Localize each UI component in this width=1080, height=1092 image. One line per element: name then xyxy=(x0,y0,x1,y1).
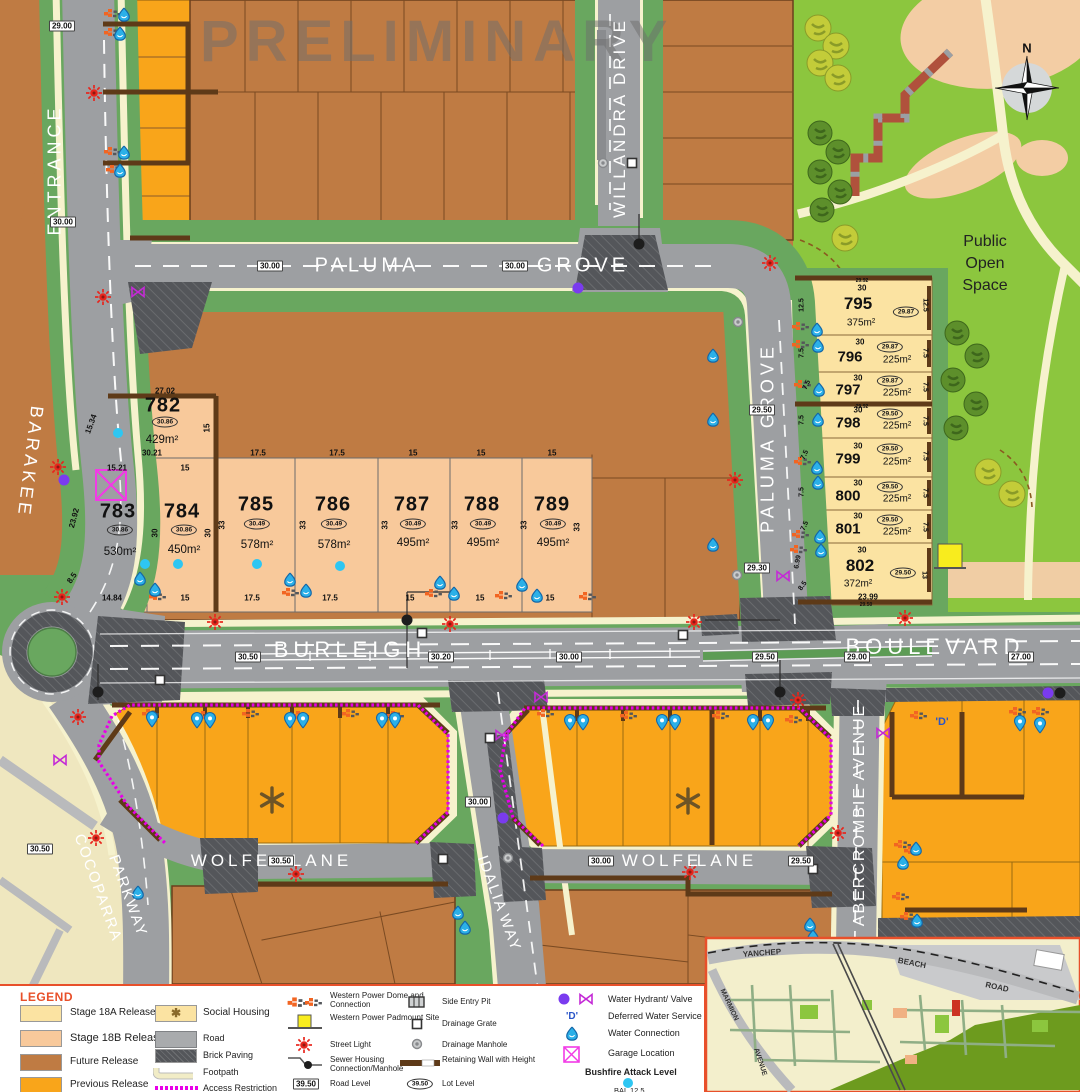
tree-icon xyxy=(941,368,965,392)
lot-level: 30.49 xyxy=(321,519,347,530)
lot-dim: 7.5 xyxy=(799,415,806,425)
street-wolfe-east: WOLFE xyxy=(622,851,702,871)
wall-level: 29.92 xyxy=(856,278,869,284)
tree-icon xyxy=(828,180,852,204)
bushfire-level-icon xyxy=(113,428,123,438)
street-paluma-grove-vertical: PALUMA GROVE xyxy=(758,343,779,533)
legend-label: Retaining Wall with Height xyxy=(442,1056,554,1065)
lot-dim: 30 xyxy=(858,284,867,293)
lot-dim: 7.5 xyxy=(799,487,806,497)
lot-number: 796 xyxy=(837,349,862,366)
bushfire-level-icon xyxy=(252,559,262,569)
lot-dim: 17.5 xyxy=(250,449,266,458)
legend-label: Garage Location xyxy=(608,1049,738,1058)
street-light-icon xyxy=(830,825,846,841)
tree-icon xyxy=(964,392,988,416)
road-level: 30.00 xyxy=(50,217,76,228)
lot-number: 787 xyxy=(394,494,430,517)
legend-label: Future Release xyxy=(70,1056,138,1067)
lot-level: 29.87 xyxy=(877,342,903,353)
tree-icon xyxy=(945,321,969,345)
lot-area: 372m² xyxy=(844,579,872,590)
sewer-manhole-icon xyxy=(93,687,104,698)
tree-icon xyxy=(832,225,858,251)
street-light-icon xyxy=(54,589,70,605)
lot-number: 802 xyxy=(846,556,874,576)
lot-dim: 30 xyxy=(854,442,863,451)
street-boulevard: BOULEVARD xyxy=(845,634,1024,660)
legend-label: Drainage Manhole xyxy=(442,1041,554,1050)
lot-dim: 12.5 xyxy=(799,298,806,312)
legend-garage-icon xyxy=(560,1044,584,1064)
legend-label: Access Restriction xyxy=(203,1083,277,1092)
deferred-water-marker: 'D' xyxy=(935,716,948,728)
road-level: 29.00 xyxy=(49,21,75,32)
lot-level: 29.50 xyxy=(877,409,903,420)
legend-padmount-icon xyxy=(286,1012,326,1032)
legend-brick-paving-icon xyxy=(155,1049,197,1063)
lot-dim: 30.21 xyxy=(142,449,162,458)
lot-level: 30.86 xyxy=(171,525,197,536)
lot-number: 798 xyxy=(835,415,860,432)
subdivision-plan: PRELIMINARY ENTRANCE BARAKEE WILLANDRA D… xyxy=(0,0,1080,1092)
street-abercrombie-avenue: ABERCROMBIE AVENUE xyxy=(851,704,869,926)
lot-dim: 15 xyxy=(548,449,557,458)
sewer-manhole-icon xyxy=(1055,688,1066,699)
water-hydrant-icon xyxy=(1043,688,1054,699)
street-lane-east: LANE xyxy=(697,851,757,871)
lot-level: 29.87 xyxy=(877,376,903,387)
lot-level: 29.50 xyxy=(890,568,916,579)
road-level: 30.20 xyxy=(428,652,454,663)
lot-dim: 33 xyxy=(520,521,529,530)
lot-number: 786 xyxy=(315,494,351,517)
sewer-manhole-icon xyxy=(775,687,786,698)
legend-swatch-18a xyxy=(20,1005,62,1022)
road-level: 30.00 xyxy=(257,261,283,272)
tree-icon xyxy=(825,65,851,91)
street-wolfe-west: WOLFE xyxy=(191,851,271,871)
lot-area: 225m² xyxy=(883,527,911,538)
lot-dim: 30 xyxy=(858,546,867,555)
lot-dim: 15 xyxy=(406,594,415,603)
tree-icon xyxy=(808,160,832,184)
lot-number: 785 xyxy=(238,494,274,517)
drainage-grate-icon xyxy=(486,734,495,743)
compass-north-label: N xyxy=(1022,41,1031,56)
tree-icon xyxy=(999,481,1025,507)
legend-label: Road xyxy=(203,1033,225,1043)
legend-sewer-icon xyxy=(284,1054,328,1072)
legend-label: Bushfire Attack Level xyxy=(585,1068,715,1077)
lot-dim: 33 xyxy=(218,521,227,530)
lot-dim: 17.5 xyxy=(322,594,338,603)
street-willandra-drive: WILLANDRA DRIVE xyxy=(610,18,630,218)
legend-road-level-icon: 39.50 xyxy=(293,1079,319,1090)
street-lane-west: LANE xyxy=(292,851,352,871)
street-paluma: PALUMA xyxy=(315,255,420,278)
street-light-icon xyxy=(897,610,913,626)
tree-icon xyxy=(808,121,832,145)
lot-level: 30.86 xyxy=(152,417,178,428)
lot-level: 29.50 xyxy=(877,515,903,526)
lot-dim: 14.84 xyxy=(102,594,122,603)
street-light-icon xyxy=(207,614,223,630)
lot-number: 788 xyxy=(464,494,500,517)
bushfire-level-icon xyxy=(140,559,150,569)
lot-dim: 17.5 xyxy=(244,594,260,603)
lot-level: 30.49 xyxy=(400,519,426,530)
tree-icon xyxy=(975,459,1001,485)
legend-label: Stage 18B Release xyxy=(70,1032,165,1044)
lot-area: 495m² xyxy=(467,537,500,549)
lot-level: 30.86 xyxy=(107,525,133,536)
lot-dim: 33 xyxy=(451,521,460,530)
drainage-manhole-icon xyxy=(734,318,743,327)
legend-footpath-icon xyxy=(153,1066,195,1080)
legend-drainage-manhole-icon xyxy=(405,1036,429,1052)
legend-label: Water Hydrant/ Valve xyxy=(608,995,738,1004)
legend-power-dome-icon xyxy=(283,994,327,1010)
road-level: 30.50 xyxy=(27,844,53,855)
lot-dim: 30 xyxy=(854,512,863,521)
sewer-manhole-icon xyxy=(634,239,645,250)
lot-dim: 7.5 xyxy=(922,488,929,498)
lot-dim: 17.5 xyxy=(329,449,345,458)
tree-icon xyxy=(965,344,989,368)
lot-dim: 15 xyxy=(203,424,212,433)
legend-label: Side Entry Pit xyxy=(442,998,554,1007)
lot-number: 782 xyxy=(145,395,181,418)
lot-dim: 13 xyxy=(921,571,928,579)
lot-area: 225m² xyxy=(883,355,911,366)
lot-number: 801 xyxy=(835,521,860,538)
road-level: 30.50 xyxy=(235,652,261,663)
road-level: 29.30 xyxy=(744,563,770,574)
preliminary-watermark: PRELIMINARY xyxy=(200,8,780,75)
lot-dim: 33 xyxy=(299,521,308,530)
lot-dim: 30 xyxy=(856,338,865,347)
road-level: 29.50 xyxy=(749,405,775,416)
drainage-manhole-icon xyxy=(504,854,513,863)
legend-road-icon xyxy=(155,1031,197,1048)
legend-label: Lot Level xyxy=(442,1080,554,1089)
bushfire-level-icon xyxy=(335,561,345,571)
legend-drainage-grate-icon xyxy=(405,1016,429,1032)
lot-dim: 15 xyxy=(477,449,486,458)
water-hydrant-icon xyxy=(498,813,509,824)
pos-label-open: Open xyxy=(965,255,1004,273)
lot-dim: 15.21 xyxy=(107,464,127,473)
lot-dim: 30 xyxy=(151,529,160,538)
lot-level: 30.49 xyxy=(540,519,566,530)
lot-dim: 7.5 xyxy=(922,416,929,426)
drainage-grate-icon xyxy=(156,676,165,685)
wall-level: 29.50 xyxy=(860,602,873,608)
sewer-manhole-icon xyxy=(402,615,413,626)
legend-retaining-wall-icon xyxy=(398,1056,442,1070)
lot-number: 799 xyxy=(835,451,860,468)
street-light-icon xyxy=(70,709,86,725)
drainage-grate-icon xyxy=(679,631,688,640)
legend-label: Brick Paving xyxy=(203,1050,253,1060)
lot-area: 530m² xyxy=(104,546,137,558)
lot-dim: 15 xyxy=(546,594,555,603)
legend-label: Water Connection xyxy=(608,1029,738,1038)
road-level: 30.00 xyxy=(465,797,491,808)
road-level: 30.00 xyxy=(502,261,528,272)
lot-area: 225m² xyxy=(883,388,911,399)
lot-level: 30.49 xyxy=(470,519,496,530)
lot-dim: 15 xyxy=(409,449,418,458)
legend-access-restriction-icon xyxy=(155,1086,199,1090)
lot-number: 795 xyxy=(844,294,872,314)
street-grove: GROVE xyxy=(537,255,629,278)
road-level: 27.00 xyxy=(1008,652,1034,663)
bushfire-level-icon xyxy=(173,559,183,569)
lot-area: 429m² xyxy=(146,434,179,446)
legend-swatch-previous xyxy=(20,1077,62,1092)
lot-level: 30.49 xyxy=(244,519,270,530)
legend-swatch-18b xyxy=(20,1030,62,1047)
wall-level: 29.92 xyxy=(856,404,869,410)
tree-icon xyxy=(826,140,850,164)
legend-social-housing-icon: ✱ xyxy=(155,1005,197,1022)
lot-area: 375m² xyxy=(847,318,875,329)
lot-area: 225m² xyxy=(883,421,911,432)
road-level: 29.00 xyxy=(844,652,870,663)
legend-label: Previous Release xyxy=(70,1079,148,1090)
lot-area: 495m² xyxy=(397,537,430,549)
lot-area: 225m² xyxy=(883,494,911,505)
lot-dim: 15 xyxy=(476,594,485,603)
lot-number: 800 xyxy=(835,488,860,505)
lot-dim: 12.5 xyxy=(922,298,929,312)
legend-label: Footpath xyxy=(203,1067,239,1077)
drainage-manhole-icon xyxy=(599,159,608,168)
lot-dim: 23.99 xyxy=(858,593,878,602)
legend-label: Social Housing xyxy=(203,1007,270,1018)
legend-label: Stage 18A Release xyxy=(70,1007,156,1018)
road-level: 29.50 xyxy=(752,652,778,663)
road-level: 30.50 xyxy=(268,856,294,867)
legend-label: Deferred Water Service xyxy=(608,1012,738,1021)
tree-icon xyxy=(944,416,968,440)
pos-label-space: Space xyxy=(962,277,1007,295)
pos-label-public: Public xyxy=(963,233,1007,251)
lot-number: 784 xyxy=(164,501,200,524)
legend-deferred-prefix: 'D' xyxy=(566,1011,578,1022)
street-light-icon xyxy=(86,85,102,101)
legend-title: LEGEND xyxy=(20,990,73,1004)
water-hydrant-icon xyxy=(573,283,584,294)
power-padmount-icon xyxy=(934,544,966,568)
lot-number: 789 xyxy=(534,494,570,517)
lot-area: 225m² xyxy=(883,457,911,468)
lot-dim: 7.5 xyxy=(922,522,929,532)
lot-area: 578m² xyxy=(318,539,351,551)
lot-dim: 15 xyxy=(181,594,190,603)
street-light-icon xyxy=(442,616,458,632)
lot-dim: 33 xyxy=(381,521,390,530)
lot-dim: 15 xyxy=(181,464,190,473)
lot-dim: 30 xyxy=(854,479,863,488)
street-burleigh: BURLEIGH xyxy=(274,637,426,663)
lot-level: 29.87 xyxy=(893,307,919,318)
street-light-icon xyxy=(686,614,702,630)
street-light-icon xyxy=(790,692,806,708)
lot-level: 29.50 xyxy=(877,482,903,493)
lot-dim: 33 xyxy=(573,523,582,532)
road-level: 30.00 xyxy=(556,652,582,663)
lot-area: 450m² xyxy=(168,544,201,556)
lot-dim: 7.5 xyxy=(799,348,806,358)
lot-dim: 7.5 xyxy=(922,451,929,461)
street-light-icon xyxy=(727,472,743,488)
lot-level: 29.50 xyxy=(877,444,903,455)
water-hydrant-icon xyxy=(59,475,70,486)
legend-hydrant-valve-icon xyxy=(552,991,604,1007)
lot-number: 783 xyxy=(100,501,136,524)
road-level: 30.00 xyxy=(588,856,614,867)
lot-dim: 27.02 xyxy=(155,387,175,396)
lot-dim: 7.5 xyxy=(922,382,929,392)
legend-lot-level-icon: 39.50 xyxy=(407,1079,433,1090)
legend-street-light-icon xyxy=(292,1034,316,1056)
legend-panel: LEGEND Stage 18A Release Stage 18B Relea… xyxy=(0,984,706,1092)
lot-dim: 30 xyxy=(204,529,213,538)
lot-area: 578m² xyxy=(241,539,274,551)
legend-side-entry-pit-icon xyxy=(405,994,429,1010)
drainage-grate-icon xyxy=(439,855,448,864)
legend-water-connection-icon xyxy=(560,1025,584,1043)
road-level: 29.50 xyxy=(788,856,814,867)
legend-label: Drainage Grate xyxy=(442,1020,554,1029)
street-light-icon xyxy=(762,255,778,271)
lot-dim: 7.5 xyxy=(922,348,929,358)
drainage-manhole-icon xyxy=(733,571,742,580)
lot-area: 495m² xyxy=(537,537,570,549)
tree-icon xyxy=(810,198,834,222)
legend-bal-value: BAL 12.5 xyxy=(614,1087,674,1092)
lot-number: 797 xyxy=(835,382,860,399)
legend-swatch-future xyxy=(20,1054,62,1071)
